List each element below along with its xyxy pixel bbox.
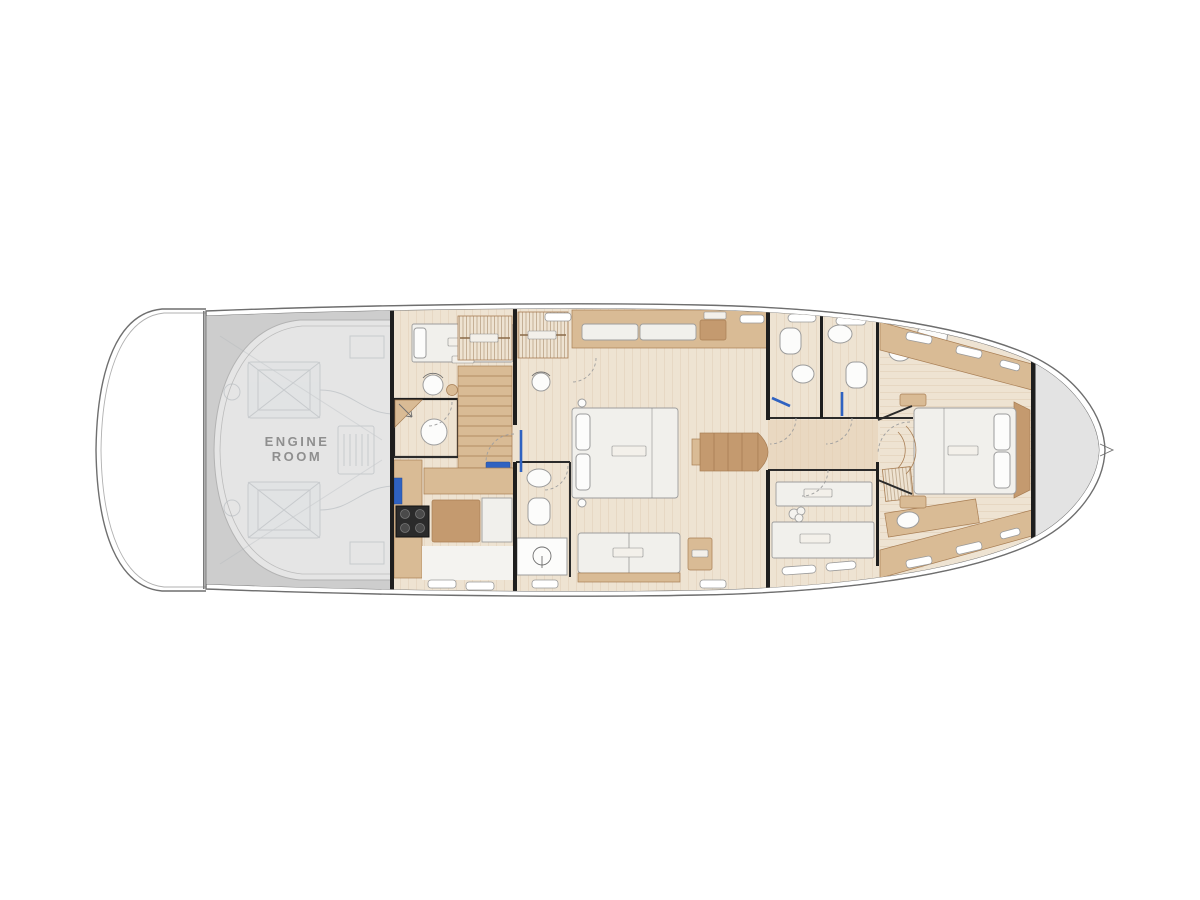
engine-room-label-line1: ENGINE bbox=[265, 434, 330, 449]
vip-bed-pillow bbox=[994, 452, 1010, 488]
staircase-aft bbox=[458, 366, 512, 468]
dimension-tag bbox=[948, 446, 978, 455]
bulkhead-mid-fwd-lower bbox=[766, 470, 770, 592]
nightstand bbox=[900, 394, 926, 406]
bulkhead-mid-fwd-upper bbox=[766, 308, 770, 420]
hull-window bbox=[428, 580, 456, 588]
hull-window bbox=[466, 582, 494, 590]
sink-icon bbox=[792, 365, 814, 383]
dimension-tag bbox=[800, 534, 830, 543]
master-top-sofa-cushion bbox=[582, 324, 638, 340]
stove-burner bbox=[416, 524, 425, 533]
hull-window bbox=[700, 580, 726, 588]
galley-floor-white bbox=[422, 546, 514, 580]
master-sofa-base bbox=[578, 573, 680, 582]
galley-tall-unit bbox=[482, 498, 512, 542]
dimension-tag bbox=[528, 331, 556, 339]
transom-line bbox=[203, 311, 205, 589]
sink-icon bbox=[828, 325, 852, 343]
fridge-unit bbox=[394, 478, 402, 504]
bedside-lamp bbox=[578, 499, 586, 507]
engine-room-label-line2: ROOM bbox=[272, 449, 322, 464]
toilet-icon bbox=[528, 498, 550, 525]
guest-partition bbox=[876, 462, 879, 566]
toilet-icon bbox=[421, 419, 447, 445]
dimension-tag bbox=[612, 446, 646, 456]
galley-upper-counter bbox=[424, 468, 514, 494]
bulkhead-bow bbox=[1031, 348, 1036, 552]
toilet-icon bbox=[780, 328, 801, 354]
master-bed-pillow bbox=[576, 454, 590, 490]
companionway-stairs bbox=[692, 433, 768, 471]
stove-icon bbox=[396, 506, 429, 537]
bedside-lamp bbox=[578, 399, 586, 407]
bulkhead-mid-aft-lower bbox=[513, 462, 517, 592]
deck-plan-canvas: ENGINE ROOM bbox=[0, 0, 1200, 900]
crew-bed-pillow bbox=[414, 328, 426, 358]
bathroom-partition bbox=[820, 310, 823, 418]
yacht-deck-plan: ENGINE ROOM bbox=[0, 0, 1200, 900]
bathroom-partition bbox=[876, 310, 879, 418]
dimension-tag bbox=[613, 548, 643, 557]
stove-burner bbox=[416, 510, 425, 519]
nightstand bbox=[900, 496, 926, 508]
dimension-tag bbox=[692, 550, 708, 557]
vip-bed-pillow bbox=[994, 414, 1010, 450]
toilet-icon bbox=[846, 362, 867, 388]
crew-side-table bbox=[447, 385, 458, 396]
hull-window bbox=[740, 315, 764, 323]
swim-platform bbox=[96, 309, 206, 591]
crew-armchair bbox=[423, 375, 443, 395]
dimension-tag bbox=[704, 312, 726, 319]
vanity-chair bbox=[532, 373, 550, 391]
master-bed-pillow bbox=[576, 414, 590, 450]
stove-burner bbox=[401, 510, 410, 519]
master-top-table bbox=[700, 320, 726, 340]
hull-window bbox=[532, 580, 558, 588]
corridor-floor bbox=[768, 420, 878, 470]
bulkhead-engine bbox=[390, 308, 394, 592]
bulkhead-mid-aft-upper bbox=[513, 308, 517, 425]
stove-burner bbox=[401, 524, 410, 533]
galley-island bbox=[432, 500, 480, 542]
hull-window bbox=[545, 313, 571, 321]
sink-icon bbox=[527, 469, 551, 487]
dimension-tag bbox=[470, 334, 498, 342]
master-top-sofa-cushion bbox=[640, 324, 696, 340]
